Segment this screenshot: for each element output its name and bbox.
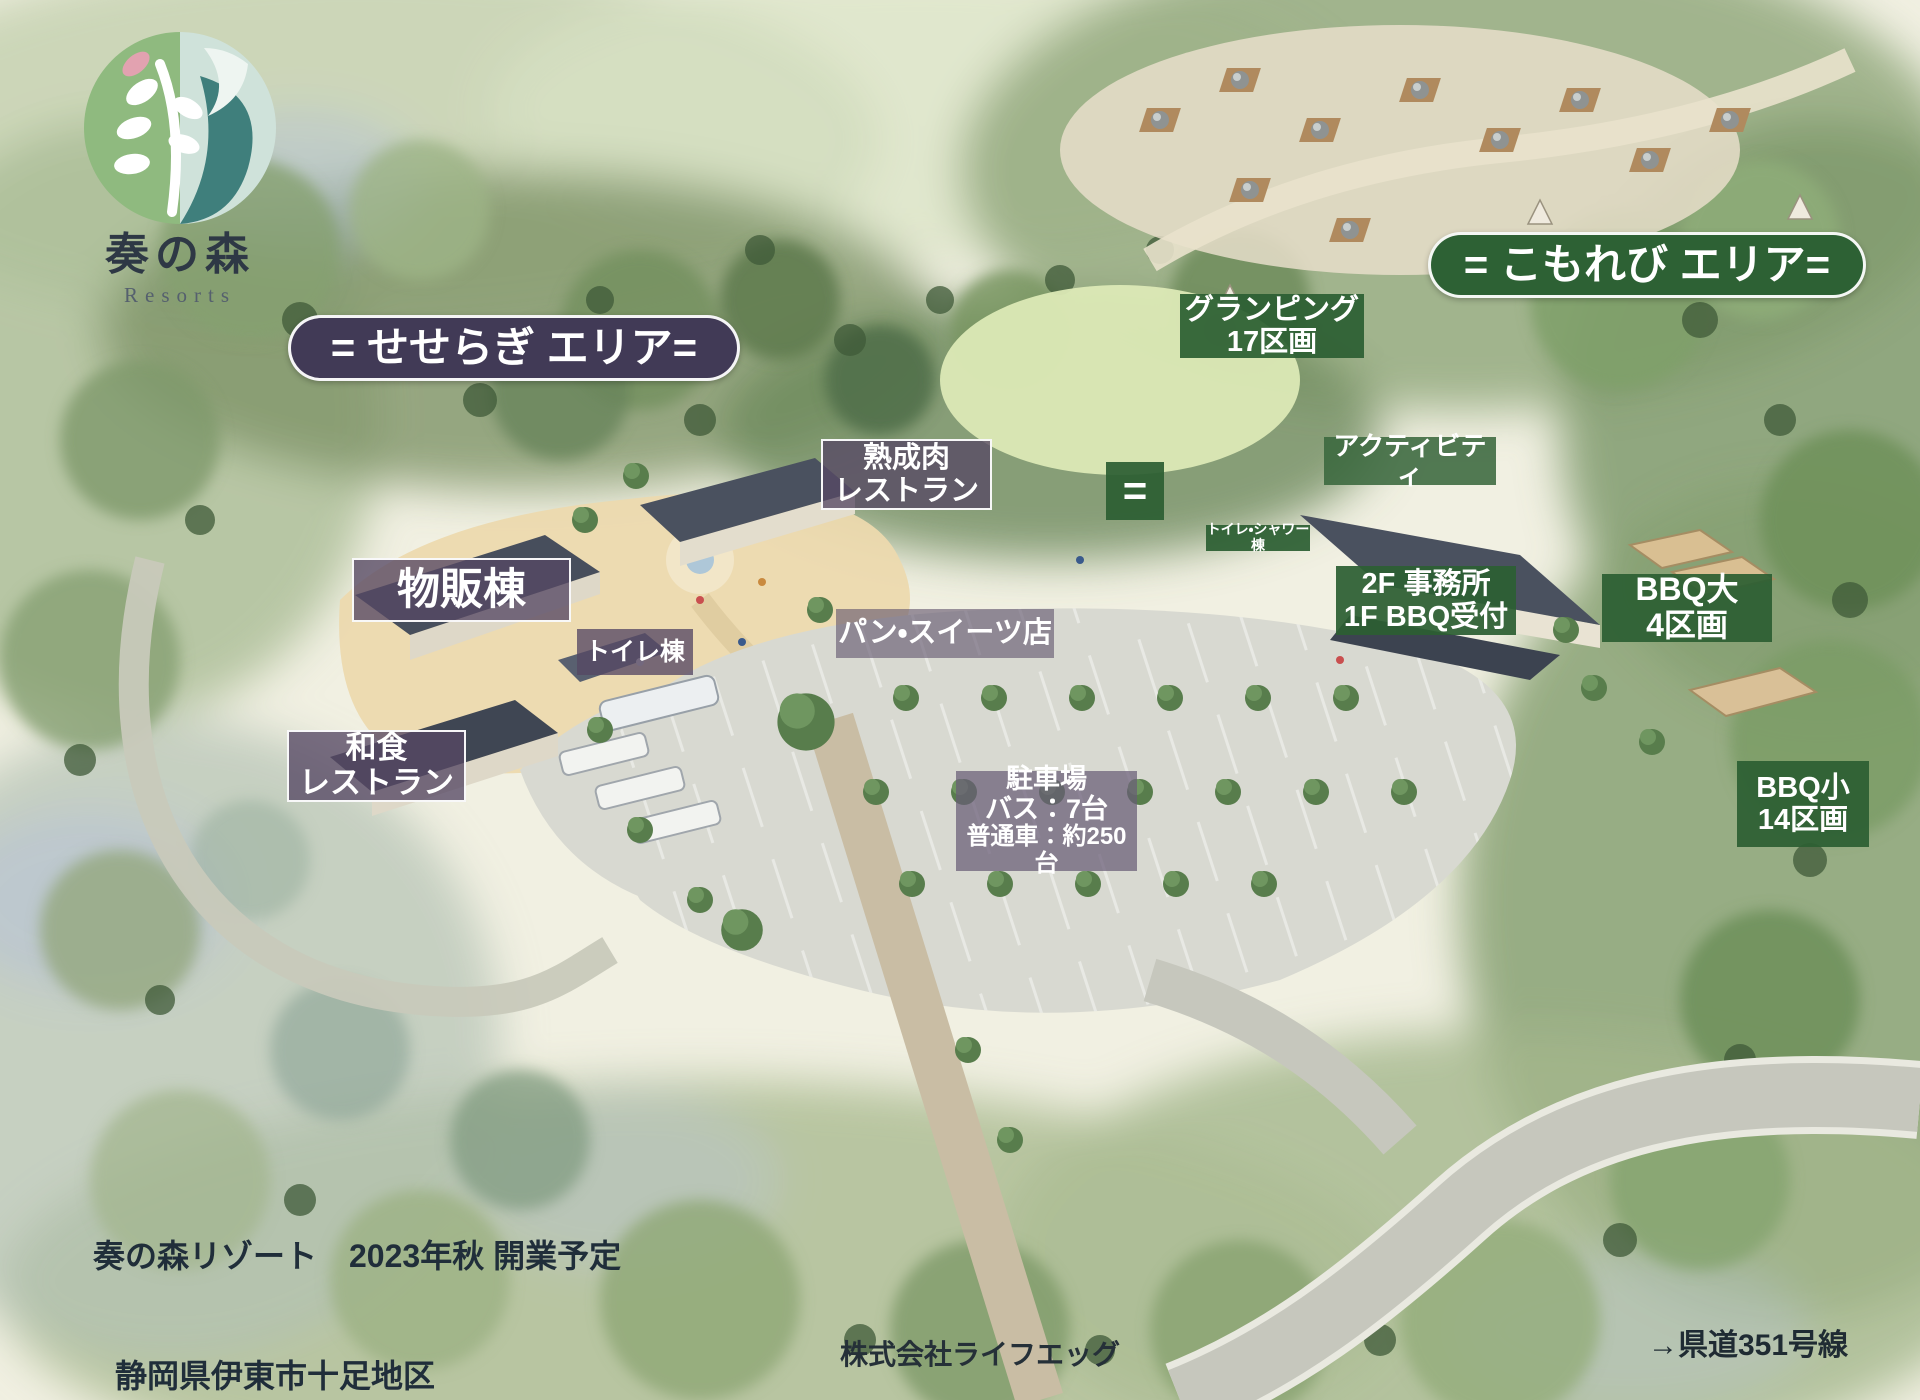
label-glamping-line1: グランピング bbox=[1185, 294, 1359, 326]
label-office-line2: 1F BBQ受付 bbox=[1344, 601, 1508, 633]
label-japanese-restaurant-line1: 和食 bbox=[346, 731, 408, 766]
label-aged-meat-restaurant: 熟成肉 レストラン bbox=[821, 439, 992, 510]
label-retail-building: 物販棟 bbox=[352, 558, 571, 622]
label-parking-line2: バス：7台 bbox=[985, 794, 1108, 824]
label-parking-line1: 駐車場 bbox=[1006, 764, 1087, 794]
logo-subtitle: Resorts bbox=[60, 283, 300, 308]
label-toilet-shower-line1: トイレ・シャワー棟 bbox=[1206, 522, 1310, 553]
label-office-line1: 2F 事務所 bbox=[1362, 568, 1491, 600]
area-banner-komorebi-label: = こもれび エリア= bbox=[1464, 241, 1830, 288]
resort-map: 奏の森 Resorts = せせらぎ エリア= = こもれび エリア= グランピ… bbox=[0, 0, 1920, 1400]
project-info: 奏の森リゾート 2023年秋 開業予定 静岡県伊東市十足地区 造成面積：約2.7… bbox=[93, 1156, 621, 1400]
label-toilet-shower-building: トイレ・シャワー棟 bbox=[1206, 525, 1310, 551]
logo-mark-icon bbox=[80, 28, 280, 228]
label-toilet-building: トイレ棟 bbox=[577, 629, 693, 675]
area-banner-komorebi: = こもれび エリア= bbox=[1428, 232, 1866, 298]
project-info-line2: 静岡県伊東市十足地区 bbox=[93, 1356, 621, 1396]
road-label: →県道351号線 bbox=[1648, 1320, 1848, 1364]
label-bbq-small-line1: BBQ小 bbox=[1756, 772, 1849, 804]
label-activity-line1: アクティビティ bbox=[1324, 432, 1496, 490]
label-glamping: グランピング 17区画 bbox=[1180, 294, 1364, 358]
label-bbq-large-line1: BBQ大 bbox=[1635, 572, 1738, 608]
label-aged-meat-line2: レストラン bbox=[834, 475, 979, 507]
label-office-bbq-reception: 2F 事務所 1F BBQ受付 bbox=[1336, 566, 1516, 635]
logo-title: 奏の森 bbox=[60, 233, 300, 277]
label-japanese-restaurant: 和食 レストラン bbox=[287, 730, 466, 802]
label-bakery-line1: パン・スイーツ店 bbox=[838, 617, 1052, 649]
label-bbq-small-line2: 14区画 bbox=[1758, 804, 1848, 836]
label-aged-meat-line1: 熟成肉 bbox=[863, 442, 950, 474]
label-equals-text: = bbox=[1123, 467, 1148, 514]
label-glamping-line2: 17区画 bbox=[1227, 326, 1317, 358]
company-name: 株式会社ライフエッグ bbox=[820, 1333, 1140, 1373]
label-retail-line1: 物販棟 bbox=[397, 566, 526, 614]
label-parking: 駐車場 バス：7台 普通車：約250台 bbox=[956, 771, 1137, 871]
label-bbq-small: BBQ小 14区画 bbox=[1737, 761, 1869, 847]
label-bakery-sweets-shop: パン・スイーツ店 bbox=[836, 609, 1054, 658]
area-banner-seseragi: = せせらぎ エリア= bbox=[288, 315, 740, 381]
label-activity: アクティビティ bbox=[1324, 437, 1496, 485]
area-banner-seseragi-label: = せせらぎ エリア= bbox=[331, 324, 697, 371]
label-bbq-large: BBQ大 4区画 bbox=[1602, 574, 1772, 642]
label-bbq-large-line2: 4区画 bbox=[1646, 608, 1728, 644]
label-toilet-line1: トイレ棟 bbox=[585, 638, 685, 666]
logo: 奏の森 Resorts bbox=[60, 28, 300, 308]
label-equals-marker: = bbox=[1106, 462, 1164, 520]
label-parking-line3: 普通車：約250台 bbox=[956, 824, 1137, 878]
project-info-line1: 奏の森リゾート 2023年秋 開業予定 bbox=[93, 1236, 621, 1276]
label-japanese-restaurant-line2: レストラン bbox=[299, 766, 454, 801]
